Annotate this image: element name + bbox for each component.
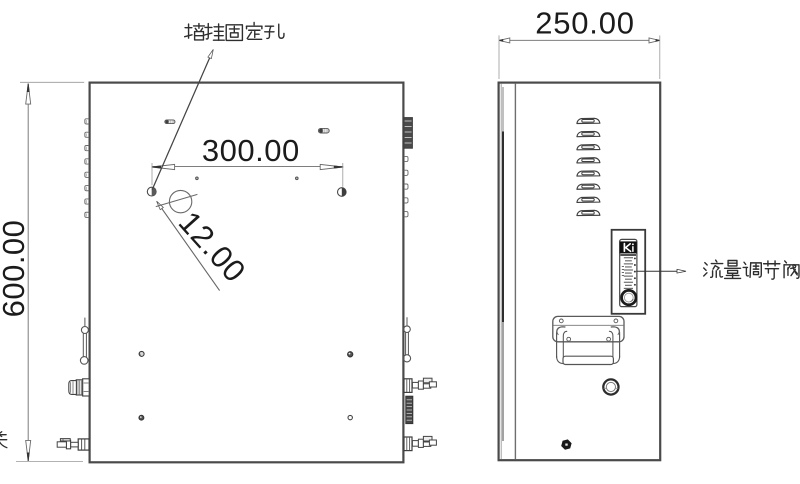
svg-text:250.00: 250.00 (535, 5, 635, 40)
svg-text:300.00: 300.00 (202, 133, 300, 168)
svg-text:600.00: 600.00 (0, 220, 31, 318)
